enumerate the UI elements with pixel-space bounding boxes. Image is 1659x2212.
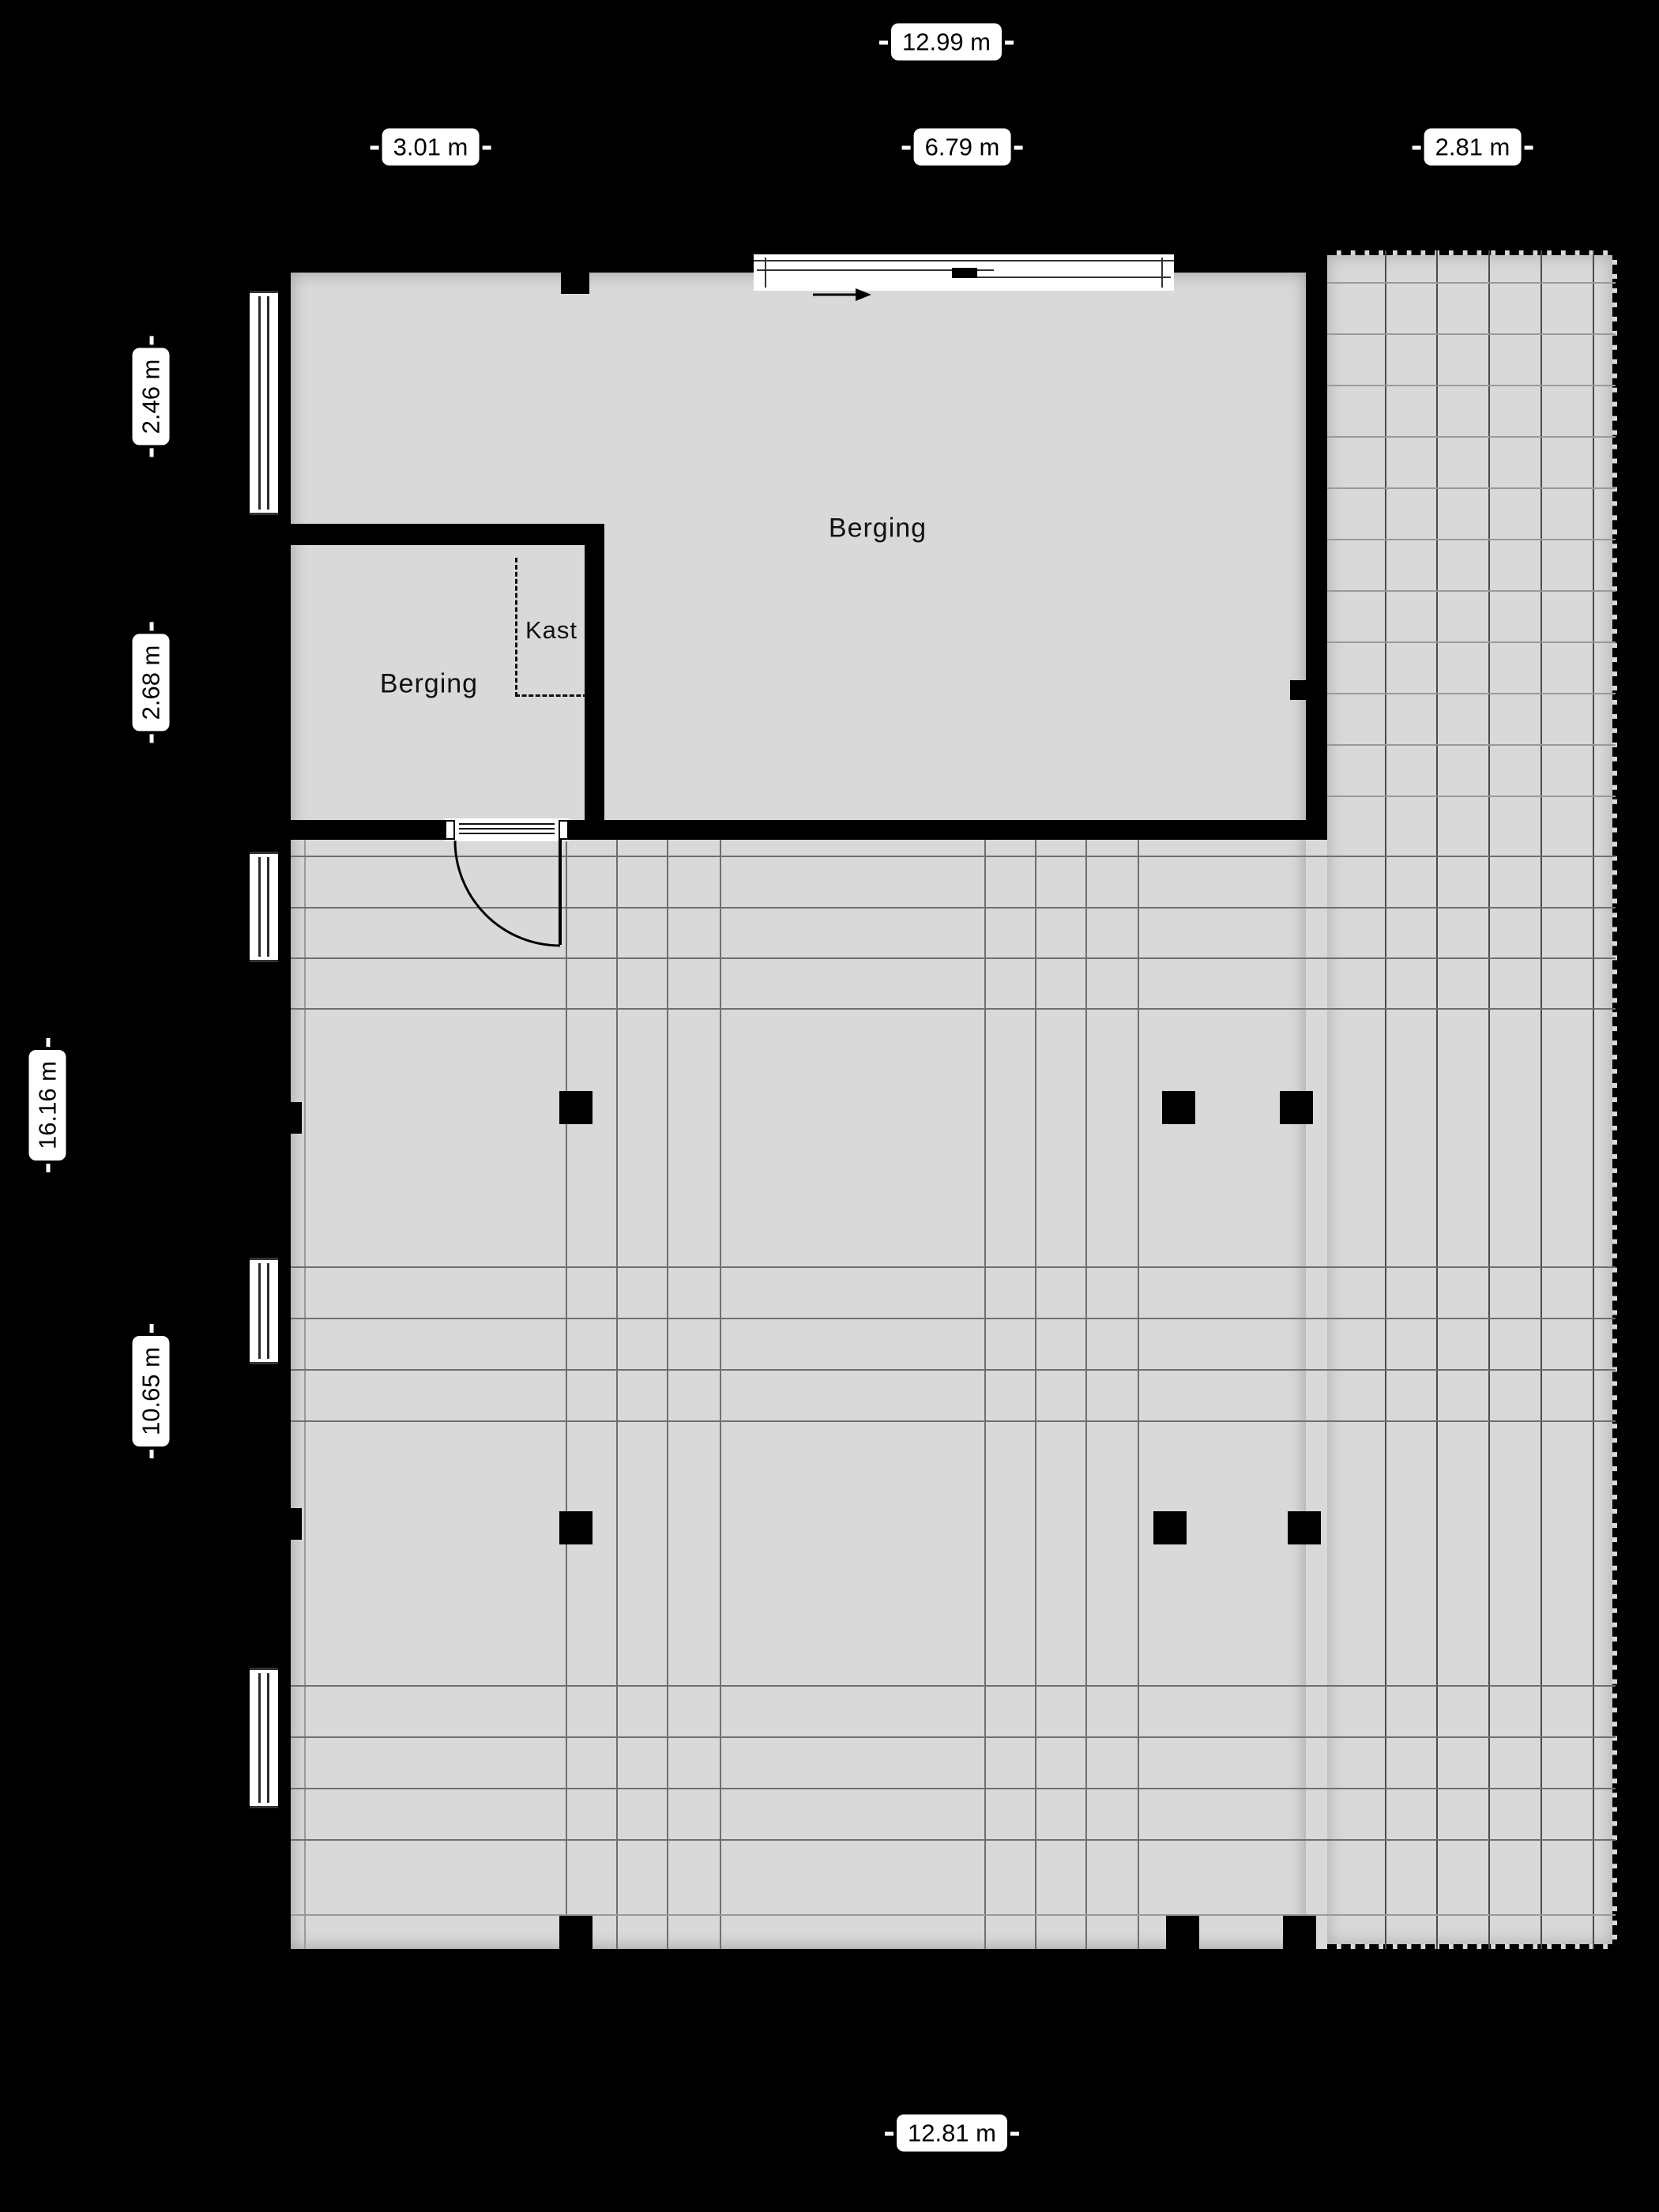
tile-grid-line-horizontal [1327,796,1616,797]
pier-left-wall-1 [275,1102,302,1134]
door-opening [445,818,569,841]
floorplan-canvas: Berging Berging Kast 12.99 m 3.01 m 6.79… [0,0,1659,2212]
tile-grid-line-horizontal [291,957,1616,959]
wall-berging-bottom [273,820,1327,840]
dim-label-top-left: 3.01 m [382,129,480,166]
door-threshold-line [459,828,555,829]
tile-grid-line-horizontal [291,1318,1616,1319]
tile-grid-line-horizontal [1327,539,1616,540]
tile-grid-line-horizontal [1327,693,1616,694]
tile-grid-line-vertical [616,840,618,1949]
dim-label-top-right: 2.81 m [1424,129,1522,166]
tile-grid-line-horizontal [1327,590,1616,592]
tile-grid-line-horizontal [291,1736,1616,1738]
tile-grid-line-vertical [1540,250,1542,1949]
tile-grid-line-horizontal [291,1685,1616,1687]
door-jamb-left [445,820,455,840]
tile-grid-line-vertical [1385,250,1386,1949]
pier-top-wall [561,273,589,294]
tile-grid-line-horizontal [291,1369,1616,1371]
tile-grid-line-vertical [566,840,567,1949]
dim-label-left-lower: 10.65 m [133,1336,170,1446]
window-left-1 [250,291,278,515]
sliding-door-jamb-left [765,258,766,288]
pier-left-wall-2 [275,1508,302,1540]
tile-grid-line-horizontal [291,1266,1616,1268]
tile-grid-line-horizontal [291,1914,1616,1916]
dim-label-bottom-total: 12.81 m [897,2115,1007,2152]
tile-grid-line-vertical [720,840,721,1949]
structural-column [1280,1091,1313,1124]
sliding-door-panel-right [953,276,1171,278]
structural-column [1283,1916,1316,1949]
window-left-4 [250,1668,278,1808]
pier-right-wall [1290,680,1306,700]
structural-column [1162,1091,1195,1124]
tile-grid-line-horizontal [1327,487,1616,489]
floor-filler-right [1306,840,1327,1949]
tile-grid-line-vertical [1035,840,1036,1949]
sliding-door-jamb-right [1161,258,1163,288]
tile-grid-line-horizontal [291,1788,1616,1789]
wall-smallroom-right [585,524,604,840]
tile-grid-line-horizontal [291,1420,1616,1422]
structural-column [559,1916,592,1949]
tile-grid-line-vertical [667,840,668,1949]
room-label-storage-small: Berging [380,669,478,700]
sliding-door-handle [952,268,977,278]
door-threshold-line [459,823,555,825]
tile-grid-line-horizontal [1327,436,1616,438]
structural-column [1153,1511,1187,1544]
tile-grid-line-vertical [1488,250,1490,1949]
tile-grid-line-horizontal [1327,333,1616,335]
door-threshold-line [459,833,555,834]
tile-grid-line-vertical [1085,840,1087,1949]
tile-grid-line-horizontal [1327,744,1616,746]
tile-grid-line-vertical [1138,840,1139,1949]
structural-column [559,1091,592,1124]
tile-grid-line-horizontal [291,1008,1616,1010]
room-label-closet: Kast [525,616,577,645]
tile-grid-line-vertical [984,840,986,1949]
room-label-storage-large: Berging [829,513,927,544]
wall-berging-right [1306,247,1327,840]
tile-grid-line-horizontal [291,1839,1616,1841]
tile-grid-line-horizontal [1327,641,1616,643]
window-left-2 [250,852,278,962]
closet-dashed-line-vertical [515,558,517,697]
tile-grid-line-vertical [304,840,306,1949]
wall-smallroom-top [273,524,604,545]
sliding-door-frame-line [754,260,1174,261]
dim-label-top-total: 12.99 m [891,24,1002,61]
structural-column [559,1511,592,1544]
tile-grid-line-horizontal [1327,385,1616,386]
closet-dashed-line-horizontal [515,694,588,697]
door-swing-arc-icon [453,840,563,950]
tile-grid-line-vertical [1436,250,1438,1949]
tile-grid-line-vertical [1593,250,1594,1949]
dim-label-top-mid: 6.79 m [914,129,1011,166]
door-jamb-right [559,820,569,840]
tile-grid-line-horizontal [1327,282,1616,284]
slide-direction-arrow-icon [810,284,875,305]
structural-column [1166,1916,1199,1949]
structural-column [1288,1511,1321,1544]
window-left-3 [250,1258,278,1364]
dim-label-left-mid: 2.68 m [133,634,170,732]
floor-terrace [1327,250,1617,1949]
dim-label-left-upper: 2.46 m [133,348,170,446]
dim-label-left-total: 16.16 m [29,1050,66,1161]
